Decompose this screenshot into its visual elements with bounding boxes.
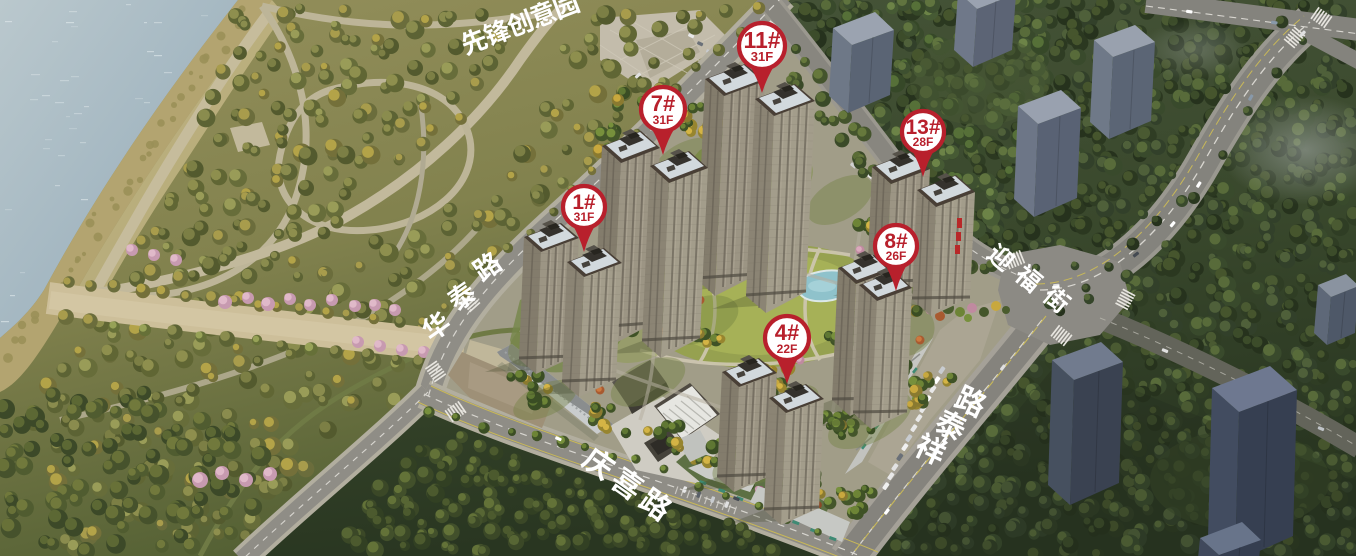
svg-text:26F: 26F: [886, 249, 907, 263]
svg-text:22F: 22F: [777, 342, 798, 356]
svg-text:31F: 31F: [751, 49, 773, 64]
svg-text:31F: 31F: [574, 210, 595, 224]
svg-text:31F: 31F: [653, 113, 674, 127]
svg-text:28F: 28F: [913, 135, 934, 149]
